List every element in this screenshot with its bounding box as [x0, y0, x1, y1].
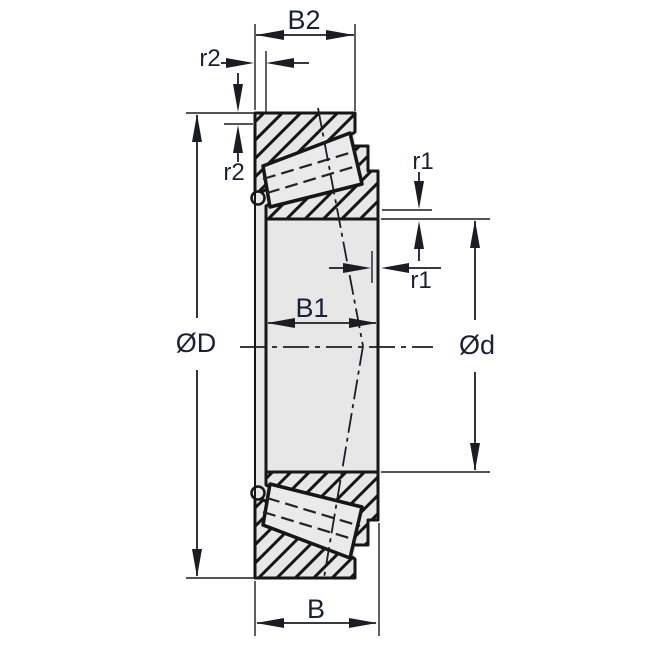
dim-label-r1-vertical: r1 — [412, 148, 433, 175]
bearing-cross-section — [240, 108, 433, 578]
dimension-bore-diameter: Ød — [381, 219, 495, 472]
bore-face — [266, 219, 378, 472]
dim-label-bore-diameter: Ød — [459, 330, 495, 360]
bearing-dimension-diagram: B2 r2 r2 ØD — [0, 0, 670, 670]
dim-label-b2: B2 — [287, 5, 320, 35]
dim-label-outer-diameter: ØD — [176, 328, 217, 358]
dim-label-r1-horizontal: r1 — [410, 267, 431, 294]
bearing-drawing-canvas: B2 r2 r2 ØD — [0, 0, 670, 670]
dimension-r2-horizontal: r2 — [199, 45, 309, 112]
dim-label-b1: B1 — [295, 293, 328, 323]
dim-label-b: B — [307, 594, 325, 624]
cage-tab-top — [252, 192, 265, 205]
dimension-r2-vertical: r2 — [223, 73, 253, 186]
dimension-b2: B2 — [255, 5, 355, 111]
cage-tab-bottom — [252, 487, 265, 500]
dim-label-r2-horizontal: r2 — [199, 45, 220, 72]
dimension-r1-vertical: r1 — [382, 148, 434, 261]
dim-label-r2-vertical: r2 — [223, 159, 244, 186]
